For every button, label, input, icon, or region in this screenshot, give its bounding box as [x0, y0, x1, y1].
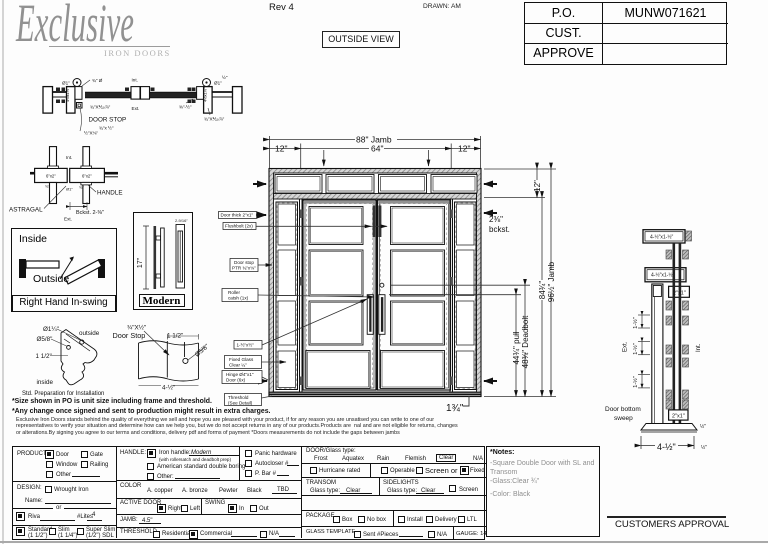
svg-text:Ø5/8": Ø5/8" — [37, 336, 53, 343]
svg-text:Clear ¼": Clear ¼" — [229, 363, 247, 368]
svg-text:outside: outside — [79, 330, 100, 337]
svg-text:Door Stop: Door Stop — [113, 331, 146, 340]
svg-text:Fixed Glass: Fixed Glass — [229, 357, 254, 362]
svg-text:Ø1": Ø1" — [214, 81, 222, 86]
svg-text:Bckst. 2-⅜": Bckst. 2-⅜" — [76, 210, 104, 216]
svg-text:44¾" pull: 44¾" pull — [512, 331, 521, 364]
svg-text:4-½"x1-½": 4-½"x1-½" — [651, 272, 675, 279]
svg-text:Door thick 2"x1": Door thick 2"x1" — [221, 213, 254, 218]
svg-text:⅜"-½": ⅜"-½" — [179, 104, 192, 110]
svg-text:1-½": 1-½" — [632, 317, 639, 328]
svg-text:Door bottom: Door bottom — [605, 406, 641, 413]
svg-text:Ø1¼": Ø1¼" — [43, 326, 59, 333]
svg-text:Ø1": Ø1" — [66, 187, 73, 192]
svg-text:¾": ¾" — [45, 184, 50, 189]
svg-text:2⅜": 2⅜" — [489, 215, 503, 224]
svg-text:¾": ¾" — [79, 185, 84, 190]
svg-text:½"X⅛": ½"X⅛" — [84, 130, 98, 136]
svg-text:1-½": 1-½" — [632, 376, 639, 387]
svg-text:Ext.: Ext. — [64, 217, 72, 222]
svg-text:6"x2": 6"x2" — [82, 174, 92, 179]
svg-text:HANDLE: HANDLE — [97, 190, 123, 197]
svg-text:48¾" Deadbolt: 48¾" Deadbolt — [521, 315, 530, 368]
svg-text:(See Detail): (See Detail) — [228, 401, 253, 406]
svg-text:Ø5/8": Ø5/8" — [194, 343, 211, 359]
svg-text:4-½": 4-½" — [657, 442, 676, 452]
svg-text:Int.: Int. — [696, 343, 702, 352]
svg-text:12": 12" — [533, 180, 542, 192]
svg-text:Threshold: Threshold — [228, 395, 249, 400]
svg-text:Int.: Int. — [132, 78, 138, 83]
svg-text:inside: inside — [37, 379, 54, 386]
svg-text:¾"X⅒⅞": ¾"X⅒⅞" — [204, 117, 225, 122]
svg-text:Roller: Roller — [228, 290, 240, 295]
svg-text:84¾": 84¾" — [538, 281, 547, 300]
svg-text:Door stop: Door stop — [234, 260, 254, 265]
svg-text:Flushbolt (2x): Flushbolt (2x) — [225, 224, 253, 229]
svg-text:1-½"x½": 1-½"x½" — [237, 342, 255, 348]
svg-text:4-½"x1-½": 4-½"x1-½" — [650, 234, 674, 241]
svg-text:1¾": 1¾" — [446, 403, 464, 414]
svg-text:2"x1": 2"x1" — [672, 414, 685, 420]
svg-text:sweep: sweep — [614, 415, 633, 422]
svg-text:¾" Ø: ¾" Ø — [92, 78, 103, 83]
svg-text:96½" Jamb: 96½" Jamb — [547, 261, 556, 302]
svg-text:12": 12" — [458, 144, 470, 154]
svg-text:Int.: Int. — [66, 155, 72, 160]
svg-text:64": 64" — [371, 144, 383, 154]
svg-text:½": ½" — [701, 444, 707, 451]
svg-text:4½x1½": 4½x1½" — [65, 87, 70, 102]
svg-text:4-½": 4-½" — [162, 384, 175, 392]
svg-text:2"x1": 2"x1" — [673, 291, 686, 297]
svg-text:6"x2": 6"x2" — [46, 174, 56, 179]
svg-text:Ext.: Ext. — [132, 106, 140, 111]
svg-text:Ext.: Ext. — [623, 341, 629, 352]
svg-text:ASTRAGAL: ASTRAGAL — [9, 207, 43, 214]
svg-text:bckst.: bckst. — [489, 225, 510, 234]
svg-text:1 1/2": 1 1/2" — [36, 353, 52, 360]
svg-text:Ø1": Ø1" — [62, 81, 70, 86]
svg-text:catsh (1x): catsh (1x) — [228, 296, 249, 301]
svg-text:½": ½" — [700, 423, 706, 430]
svg-text:12": 12" — [275, 144, 287, 154]
svg-text:Door (6x): Door (6x) — [226, 378, 246, 383]
svg-text:DOOR STOP: DOOR STOP — [89, 117, 127, 124]
svg-text:PTR ¾"x⅛": PTR ¾"x⅛" — [232, 266, 256, 271]
svg-text:4½x1½": 4½x1½" — [203, 87, 208, 102]
svg-text:¾"X⅒⅞": ¾"X⅒⅞" — [90, 105, 111, 110]
svg-text:Hinge Ø4"x1": Hinge Ø4"x1" — [226, 372, 254, 377]
svg-text:¾"x ½": ¾"x ½" — [99, 125, 114, 131]
svg-text:1-½": 1-½" — [632, 343, 639, 354]
svg-text:½": ½" — [222, 74, 228, 80]
